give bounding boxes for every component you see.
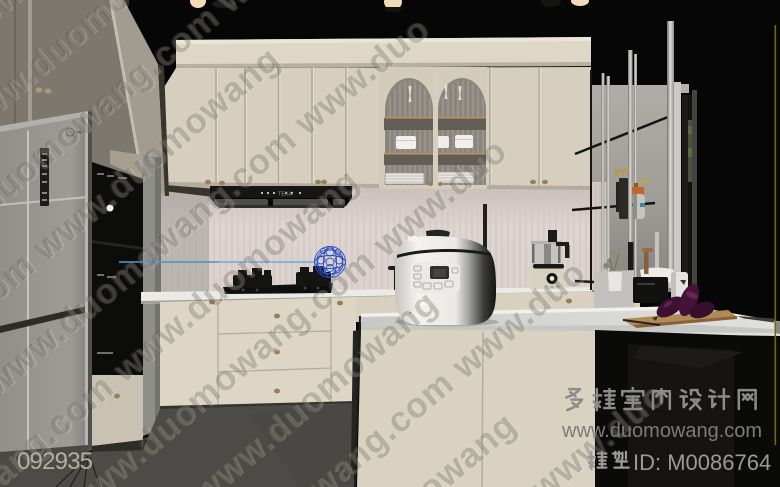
svg-text:ID: M0086764: ID: M0086764 [633,450,771,475]
svg-text:092935: 092935 [17,448,93,475]
svg-text:www.duomowang.com: www.duomowang.com [561,420,762,442]
svg-text:TEKA: TEKA [278,192,293,198]
